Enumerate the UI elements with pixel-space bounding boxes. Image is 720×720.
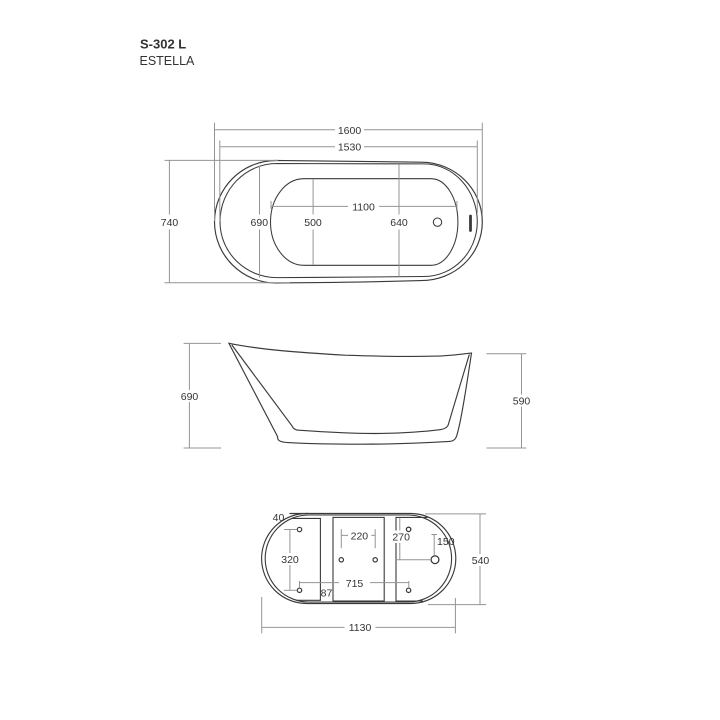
svg-text:590: 590 [513,396,531,408]
svg-text:S-302 L: S-302 L [140,37,186,52]
svg-text:150: 150 [437,536,455,548]
svg-text:740: 740 [161,217,179,229]
svg-text:715: 715 [346,578,364,590]
svg-text:270: 270 [392,531,410,543]
svg-text:640: 640 [390,217,408,229]
svg-text:40: 40 [273,512,285,524]
svg-text:1130: 1130 [349,622,372,634]
svg-text:220: 220 [351,531,369,543]
svg-text:1100: 1100 [352,201,375,213]
svg-text:500: 500 [304,217,322,229]
svg-text:ESTELLA: ESTELLA [140,54,196,68]
svg-text:1600: 1600 [338,125,362,137]
svg-text:320: 320 [281,554,299,566]
svg-text:1530: 1530 [338,142,362,154]
svg-text:87: 87 [321,588,333,600]
svg-text:540: 540 [472,555,490,567]
svg-text:690: 690 [181,391,199,403]
svg-text:690: 690 [251,217,269,229]
